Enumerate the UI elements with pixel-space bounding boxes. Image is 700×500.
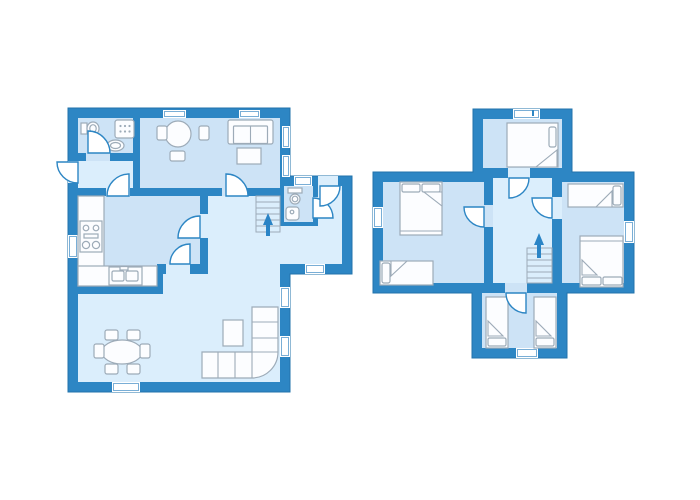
burner [82,241,89,248]
chair [127,330,140,340]
shower-dots [119,130,121,132]
vestibule-lower [280,226,342,264]
pillow [549,127,556,147]
floor-plan-image [0,0,700,500]
chair [127,364,140,374]
pillow [603,277,622,285]
burner [83,225,89,231]
door-opening [318,176,338,186]
pillow [382,263,390,283]
faucet [120,267,128,271]
chair [199,126,209,140]
stove-panel [84,234,98,238]
upper-floor-plan [373,109,634,358]
wc-toilet-tank [288,188,302,193]
door-opening [200,214,208,238]
coffee-table [237,148,261,164]
chair [105,364,118,374]
shower-dots [128,130,130,132]
pillow [488,338,506,346]
wc-toilet-bowl-inner [292,196,298,202]
wc-faucet [290,210,294,214]
landing-hall [493,178,552,283]
sink-basin [112,271,124,281]
coffee-table [223,320,243,346]
dining-table [102,340,142,364]
door-opening [86,153,110,161]
sink-basin [126,271,138,281]
ground-floor-plan [57,108,352,392]
pillow [536,338,554,346]
living-room-upper [163,274,280,294]
floor-plan-canvas [0,0,700,500]
pillow [582,277,601,285]
toilet-tank [81,123,87,134]
shower-dots [128,125,130,127]
shower-dots [119,125,121,127]
chair [140,344,150,358]
pillow [422,184,440,192]
pillow [613,186,621,205]
shower [115,120,134,138]
chair [157,126,167,140]
door-opening [508,168,530,178]
pillow [402,184,420,192]
chair [170,151,185,161]
door-opening [484,205,493,227]
chair [94,344,104,358]
shower-dots [124,130,126,132]
chair [105,330,118,340]
door-swing [57,162,78,183]
shower-dots [124,125,126,127]
burner [92,241,99,248]
burner [93,225,99,231]
bathroom-sink-inner [111,143,121,149]
door-opening [166,264,190,274]
door-opening [505,283,527,293]
round-table [165,121,191,147]
door-opening [552,197,562,219]
